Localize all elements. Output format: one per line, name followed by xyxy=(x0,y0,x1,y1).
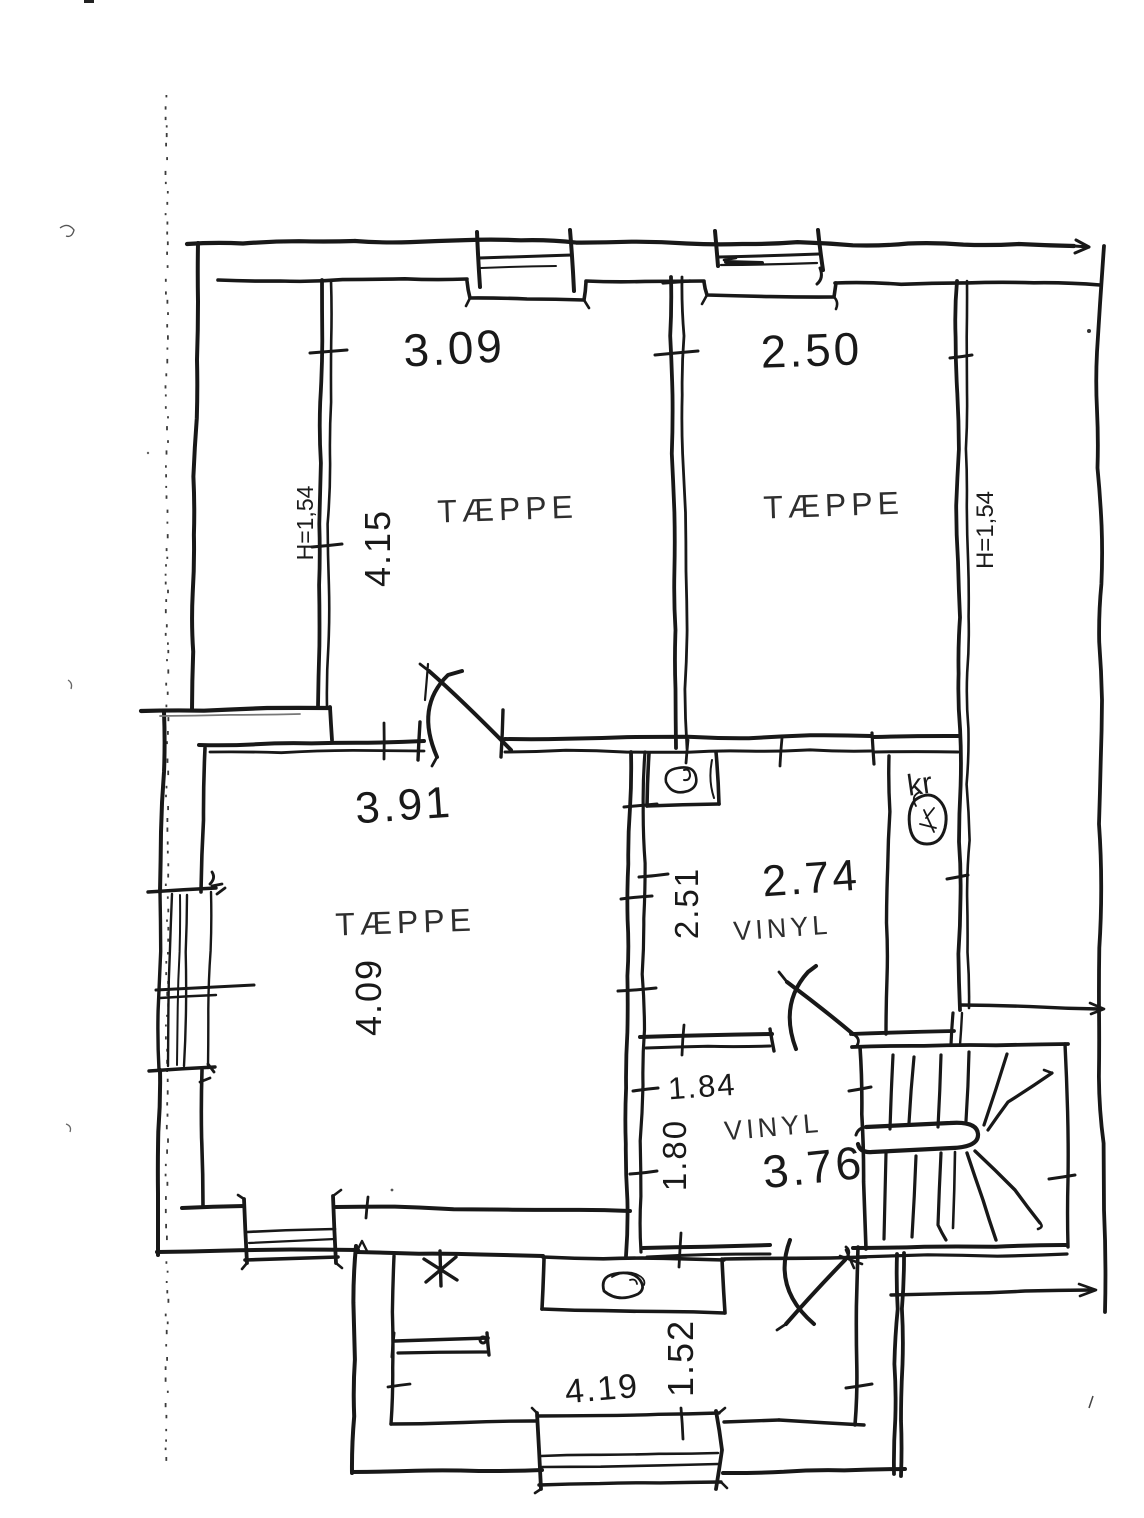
svg-text:2.74: 2.74 xyxy=(761,851,862,907)
svg-text:TÆPPE: TÆPPE xyxy=(763,485,905,526)
svg-text:3.76: 3.76 xyxy=(760,1136,866,1198)
svg-text:H=1,54: H=1,54 xyxy=(972,491,999,569)
svg-text:H=1,54: H=1,54 xyxy=(292,485,318,560)
svg-text:1.84: 1.84 xyxy=(667,1067,738,1107)
svg-text:1.52: 1.52 xyxy=(660,1319,701,1397)
svg-text:3.09: 3.09 xyxy=(402,319,506,376)
svg-text:4.19: 4.19 xyxy=(563,1367,640,1411)
svg-text:1.80: 1.80 xyxy=(656,1119,693,1191)
svg-text:TÆPPE: TÆPPE xyxy=(437,489,579,530)
svg-text:kr: kr xyxy=(905,767,934,803)
svg-text:4.15: 4.15 xyxy=(357,509,398,587)
svg-text:2.50: 2.50 xyxy=(760,322,863,378)
svg-text:4.09: 4.09 xyxy=(348,958,389,1036)
svg-text:TÆPPE: TÆPPE xyxy=(335,902,477,943)
svg-text:3.91: 3.91 xyxy=(354,778,455,834)
svg-text:2.51: 2.51 xyxy=(668,867,705,939)
